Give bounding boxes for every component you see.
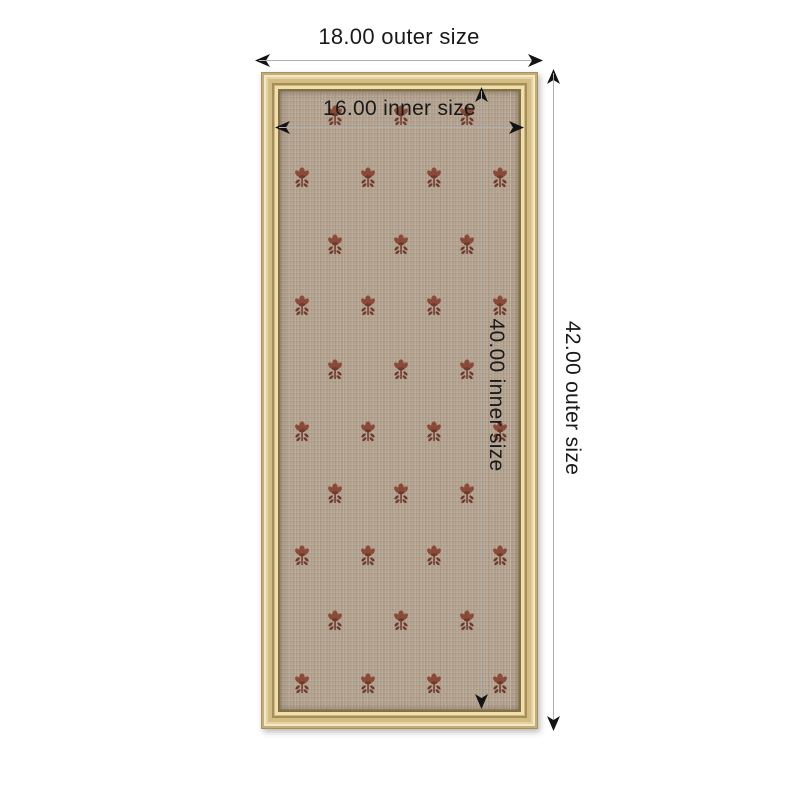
flower-sprig-icon bbox=[424, 420, 444, 444]
flower-sprig-icon bbox=[457, 482, 477, 506]
inner-width-label: 16.00 inner size bbox=[276, 97, 523, 121]
inner-height-label: 40.00 inner size bbox=[484, 318, 508, 471]
flower-sprig-icon bbox=[292, 672, 312, 696]
dimension-line bbox=[259, 60, 539, 61]
dimension-line bbox=[553, 73, 554, 727]
flower-sprig-icon bbox=[358, 544, 378, 568]
flower-sprig-icon bbox=[358, 420, 378, 444]
flower-sprig-icon bbox=[391, 233, 411, 257]
flower-sprig-icon bbox=[490, 672, 510, 696]
flower-sprig-icon bbox=[325, 358, 345, 382]
outer-height-dimension bbox=[547, 70, 560, 730]
flower-sprig-icon bbox=[292, 420, 312, 444]
flower-sprig-icon bbox=[457, 609, 477, 633]
flower-sprig-icon bbox=[358, 672, 378, 696]
flower-sprig-icon bbox=[490, 294, 510, 318]
flower-sprig-icon bbox=[490, 544, 510, 568]
outer-width-label: 18.00 outer size bbox=[256, 24, 542, 50]
flower-sprig-icon bbox=[325, 482, 345, 506]
flower-sprig-icon bbox=[292, 544, 312, 568]
flower-sprig-icon bbox=[292, 166, 312, 190]
flower-sprig-icon bbox=[325, 233, 345, 257]
flower-sprig-icon bbox=[457, 233, 477, 257]
product-dimension-diagram: 18.00 outer size 16.00 inner size 42.00 … bbox=[0, 0, 800, 800]
flower-sprig-icon bbox=[424, 672, 444, 696]
flower-sprig-icon bbox=[424, 294, 444, 318]
flower-sprig-icon bbox=[424, 166, 444, 190]
arrowhead-right-icon bbox=[528, 54, 543, 67]
arrowhead-right-icon bbox=[509, 121, 524, 134]
dimension-line bbox=[481, 91, 482, 705]
flower-sprig-icon bbox=[490, 166, 510, 190]
flower-sprig-icon bbox=[424, 544, 444, 568]
flower-sprig-icon bbox=[391, 358, 411, 382]
flower-sprig-icon bbox=[391, 482, 411, 506]
flower-sprig-icon bbox=[457, 358, 477, 382]
arrowhead-down-icon bbox=[547, 716, 560, 731]
outer-height-label: 42.00 outer size bbox=[560, 321, 584, 475]
arrowhead-down-icon bbox=[475, 694, 488, 709]
flower-sprig-icon bbox=[325, 609, 345, 633]
flower-sprig-icon bbox=[391, 609, 411, 633]
flower-sprig-icon bbox=[358, 294, 378, 318]
flower-sprig-icon bbox=[358, 166, 378, 190]
flower-sprig-icon bbox=[292, 294, 312, 318]
outer-width-dimension bbox=[256, 54, 542, 67]
